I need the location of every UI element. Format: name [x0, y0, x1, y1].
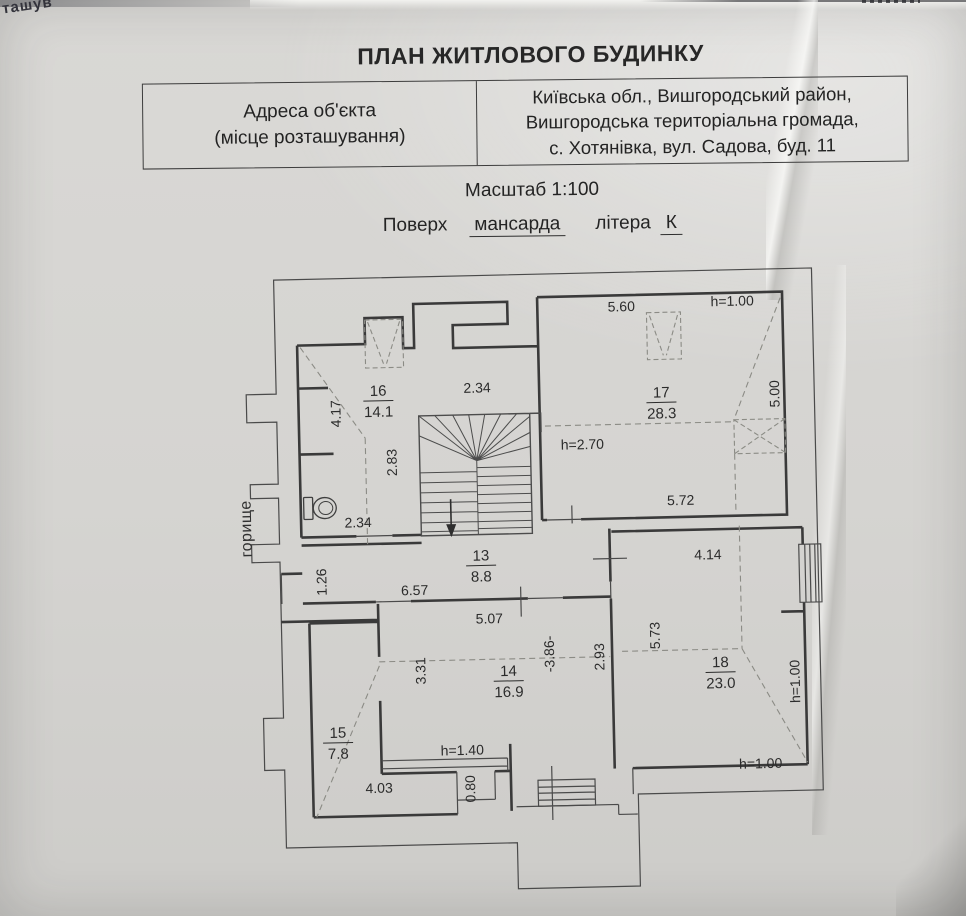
- dimension-label: h=1.00: [739, 755, 783, 772]
- dimension-label: 5.07: [476, 610, 504, 627]
- skylight-icon: [646, 312, 681, 360]
- plan-labels: 4.172.342.832.345.60h=1.005.00h=2.705.72…: [233, 291, 805, 807]
- dimension-label: 4.17: [327, 400, 344, 428]
- room-number-underline: [323, 742, 353, 743]
- skylight-icon: [365, 319, 404, 368]
- dimension-label: h=2.70: [561, 436, 605, 453]
- dimension-label: 6.57: [401, 582, 429, 599]
- dimension-label: 4.03: [365, 780, 393, 797]
- room-number-underline: [363, 400, 393, 401]
- dimension-label: 3.31: [412, 657, 429, 685]
- room-number-underline: [466, 565, 496, 566]
- floor-plan-drawing: 4.172.342.832.345.60h=1.005.00h=2.705.72…: [0, 0, 966, 916]
- scanned-floor-plan-page: { "page": { "corner_fragment": "ташув", …: [0, 0, 966, 916]
- dimension-label: 2.83: [383, 449, 400, 477]
- room-number-underline: [494, 681, 524, 682]
- room-area: 23.0: [706, 675, 736, 693]
- roof-slope-dashed-lines: [299, 297, 808, 817]
- outer-boundary: [244, 268, 826, 895]
- dimension-label: h=1.40: [441, 742, 485, 759]
- dimension-label: 4.14: [694, 546, 722, 563]
- room-number: 13: [472, 547, 489, 564]
- room-number-underline: [646, 402, 676, 403]
- chimney-icon: [538, 779, 596, 806]
- dimension-label: 5.73: [646, 622, 663, 650]
- dimension-label: 5.60: [607, 298, 635, 315]
- dimension-label: 5.72: [667, 492, 695, 509]
- room-number-underline: [706, 672, 736, 673]
- room-area: 14.1: [364, 403, 394, 421]
- dimension-label: h=1.00: [786, 659, 803, 703]
- dimension-label: h=1.00: [710, 292, 754, 309]
- dimension-label: 2.93: [591, 643, 608, 671]
- room-area: 16.9: [494, 684, 524, 702]
- interior-walls: [274, 291, 809, 818]
- room-number: 17: [653, 384, 670, 401]
- room-area: 28.3: [647, 405, 677, 423]
- dimension-label: 2.34: [463, 379, 491, 396]
- dimension-label: 0.80: [462, 775, 479, 803]
- attic-label: горище: [238, 500, 256, 557]
- toilet-icon: [304, 497, 337, 520]
- room-area: 8.8: [471, 568, 492, 585]
- dimension-label: 5.00: [766, 380, 783, 408]
- room-number: 14: [500, 663, 517, 680]
- room-number: 16: [370, 383, 387, 400]
- staircase: [419, 413, 544, 538]
- roof-hatch-icon: [734, 419, 786, 454]
- room-area: 7.8: [328, 746, 349, 763]
- dimension-label: 2.34: [344, 514, 372, 531]
- room-number: 18: [712, 654, 729, 671]
- room-number: 15: [329, 725, 346, 742]
- dimension-label: -3.86-: [541, 635, 558, 672]
- dimension-label: 1.26: [313, 568, 330, 596]
